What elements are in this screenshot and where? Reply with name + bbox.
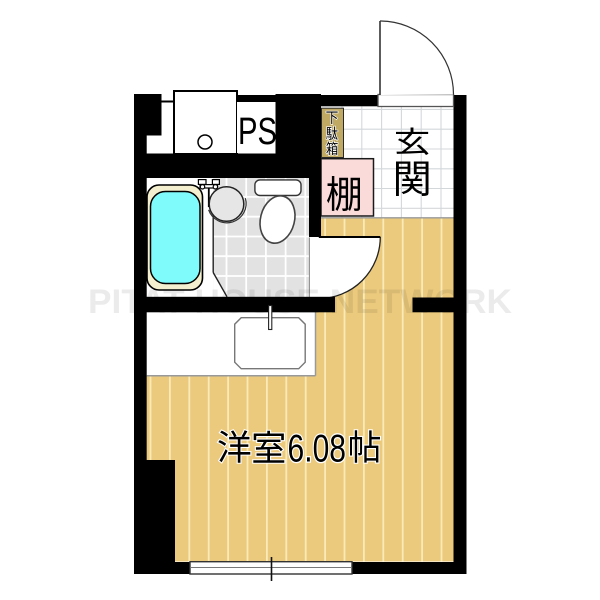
svg-text:PS: PS (238, 111, 277, 153)
svg-text:PITAT HOUSE NETWORK: PITAT HOUSE NETWORK (88, 283, 512, 321)
svg-text:6.08: 6.08 (288, 427, 347, 470)
